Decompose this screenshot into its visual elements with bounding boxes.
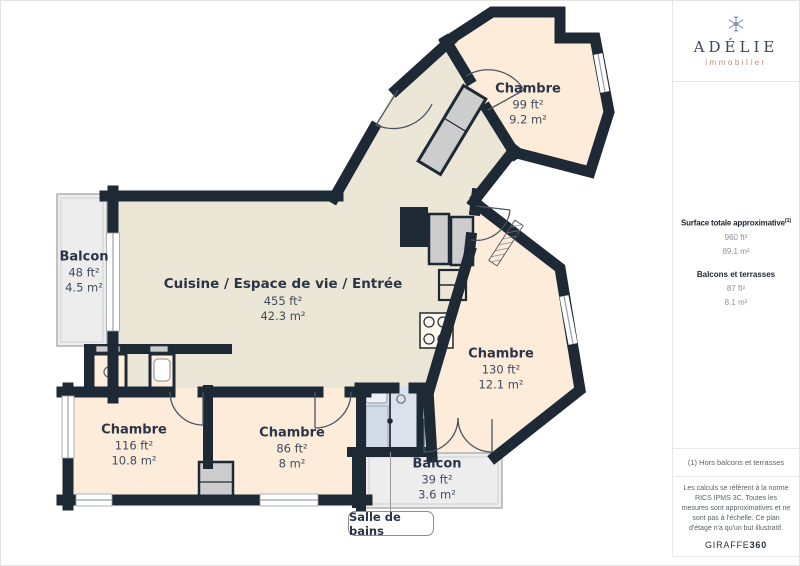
- label-chambre-bottommid: Chambre 86 ft² 8 m²: [259, 424, 325, 472]
- balconies-m: 8.1 m²: [673, 298, 799, 307]
- snowflake-icon: [726, 14, 746, 34]
- shower-tray-icon: [366, 406, 388, 448]
- brand-tagline: immobilier: [705, 58, 766, 67]
- surface-total-ft: 960 ft²: [673, 233, 799, 242]
- giraffe360-credit: GIRAFFE360: [681, 540, 791, 550]
- label-chambre-top: Chambre 99 ft² 9.2 m²: [495, 80, 561, 128]
- toilet-icon: [154, 359, 170, 381]
- footnote: (1) Hors balcons et terrasses: [673, 449, 799, 477]
- label-chambre-bottomleft: Chambre 116 ft² 10.8 m²: [101, 421, 167, 469]
- door-pivot-icon: [387, 418, 393, 424]
- brand-name: ADÉLIE: [694, 38, 779, 56]
- surface-total-title: Surface totale approximative(1): [673, 218, 799, 228]
- label-living: Cuisine / Espace de vie / Entrée 455 ft²…: [164, 276, 403, 324]
- surface-total-m: 89.1 m²: [673, 247, 799, 256]
- label-balcon-left: Balcon 48 ft² 4.5 m²: [59, 248, 108, 296]
- bathroom-leader-line: [390, 452, 391, 512]
- balconies-ft: 87 ft²: [673, 284, 799, 293]
- balconies-title: Balcons et terrasses: [673, 270, 799, 279]
- disclaimer-text: Les calculs se réfèrent à la norme RICS …: [681, 484, 791, 534]
- label-chambre-right: Chambre 130 ft² 12.1 m²: [468, 345, 534, 393]
- label-balcon-bottom: Balcon 39 ft² 3.6 m²: [412, 455, 461, 503]
- info-sidebar: ADÉLIE immobilier Surface totale approxi…: [672, 0, 799, 557]
- brand-logo: ADÉLIE immobilier: [673, 0, 799, 82]
- floor-plan-page: Chambre 99 ft² 9.2 m² Cuisine / Espace d…: [0, 0, 800, 566]
- surface-summary: Surface totale approximative(1) 960 ft² …: [673, 82, 799, 449]
- wall-chunk: [352, 450, 364, 508]
- label-salle-de-bains: Salle de bains: [348, 511, 434, 536]
- legal-section: Les calculs se réfèrent à la norme RICS …: [673, 477, 799, 557]
